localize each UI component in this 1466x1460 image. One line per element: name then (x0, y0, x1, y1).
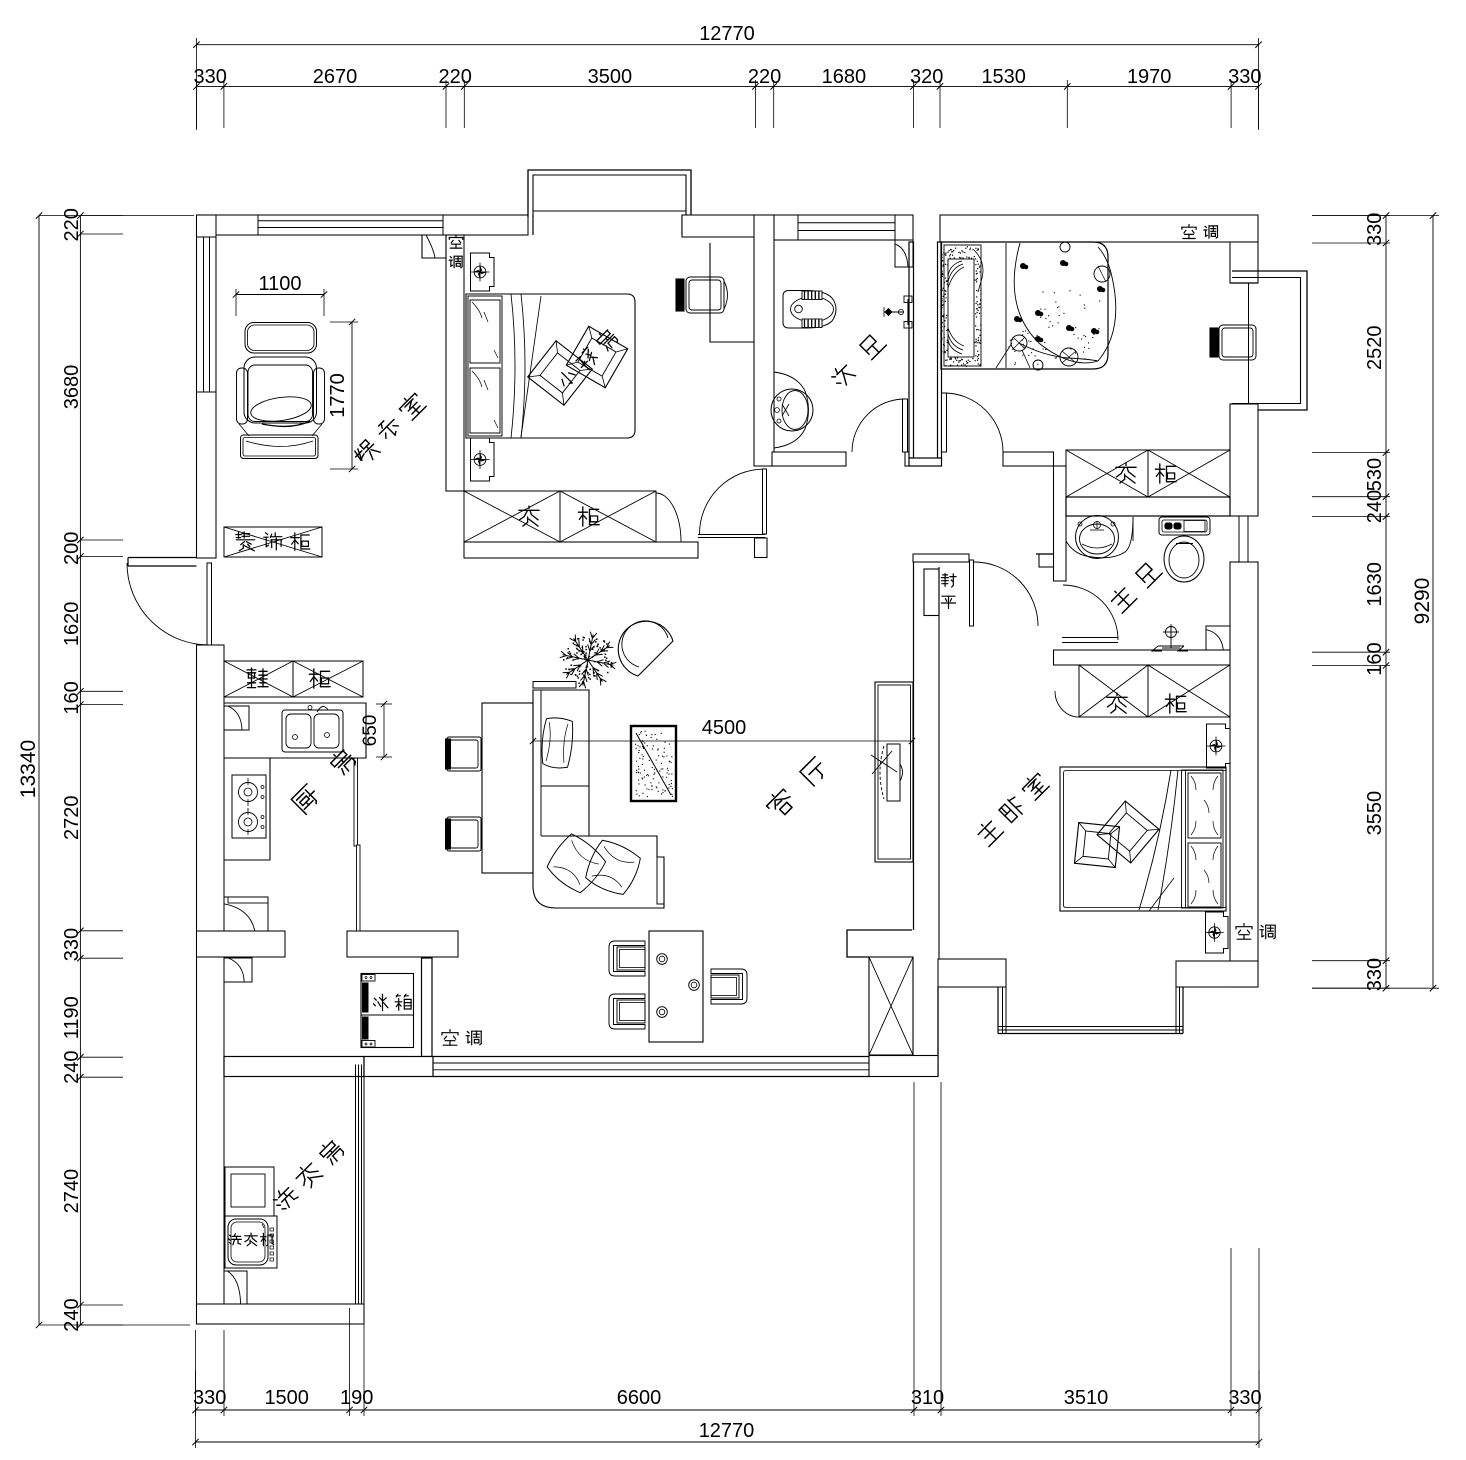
svg-text:4500: 4500 (702, 717, 747, 739)
svg-text:330: 330 (1228, 66, 1261, 88)
svg-text:220: 220 (61, 208, 83, 241)
svg-text:330: 330 (194, 66, 227, 88)
svg-text:9290: 9290 (1411, 578, 1434, 625)
svg-text:12770: 12770 (699, 1420, 755, 1442)
svg-text:330: 330 (61, 928, 83, 961)
svg-text:160: 160 (1364, 642, 1386, 675)
svg-text:1190: 1190 (61, 996, 83, 1039)
svg-text:3550: 3550 (1364, 791, 1386, 836)
svg-text:220: 220 (439, 66, 472, 88)
svg-text:3680: 3680 (61, 365, 83, 410)
svg-text:1770: 1770 (327, 373, 349, 418)
svg-text:530: 530 (1364, 458, 1386, 491)
svg-text:240: 240 (1364, 490, 1386, 523)
svg-text:2670: 2670 (313, 66, 358, 88)
svg-text:320: 320 (910, 66, 943, 88)
svg-text:330: 330 (1364, 213, 1386, 246)
svg-text:12770: 12770 (699, 23, 755, 45)
svg-text:1630: 1630 (1364, 562, 1386, 607)
svg-text:2720: 2720 (61, 795, 83, 840)
svg-text:650: 650 (360, 715, 381, 747)
svg-text:2740: 2740 (61, 1169, 83, 1214)
svg-text:200: 200 (61, 532, 83, 565)
svg-text:1530: 1530 (981, 66, 1026, 88)
svg-text:240: 240 (61, 1051, 83, 1084)
svg-text:220: 220 (748, 66, 781, 88)
svg-text:1500: 1500 (264, 1387, 309, 1409)
svg-text:3500: 3500 (588, 66, 633, 88)
svg-text:6600: 6600 (617, 1387, 662, 1409)
svg-text:1680: 1680 (822, 66, 867, 88)
svg-text:240: 240 (61, 1298, 83, 1331)
svg-text:160: 160 (61, 681, 83, 714)
svg-text:190: 190 (340, 1387, 373, 1409)
svg-text:330: 330 (1228, 1387, 1261, 1409)
svg-text:330: 330 (193, 1387, 226, 1409)
svg-text:1620: 1620 (61, 602, 83, 647)
svg-text:330: 330 (1364, 958, 1386, 991)
svg-text:1970: 1970 (1127, 66, 1172, 88)
svg-text:1100: 1100 (258, 273, 301, 295)
svg-text:13340: 13340 (17, 740, 40, 798)
svg-text:310: 310 (911, 1387, 944, 1409)
svg-text:3510: 3510 (1064, 1387, 1109, 1409)
svg-text:2520: 2520 (1364, 326, 1386, 371)
